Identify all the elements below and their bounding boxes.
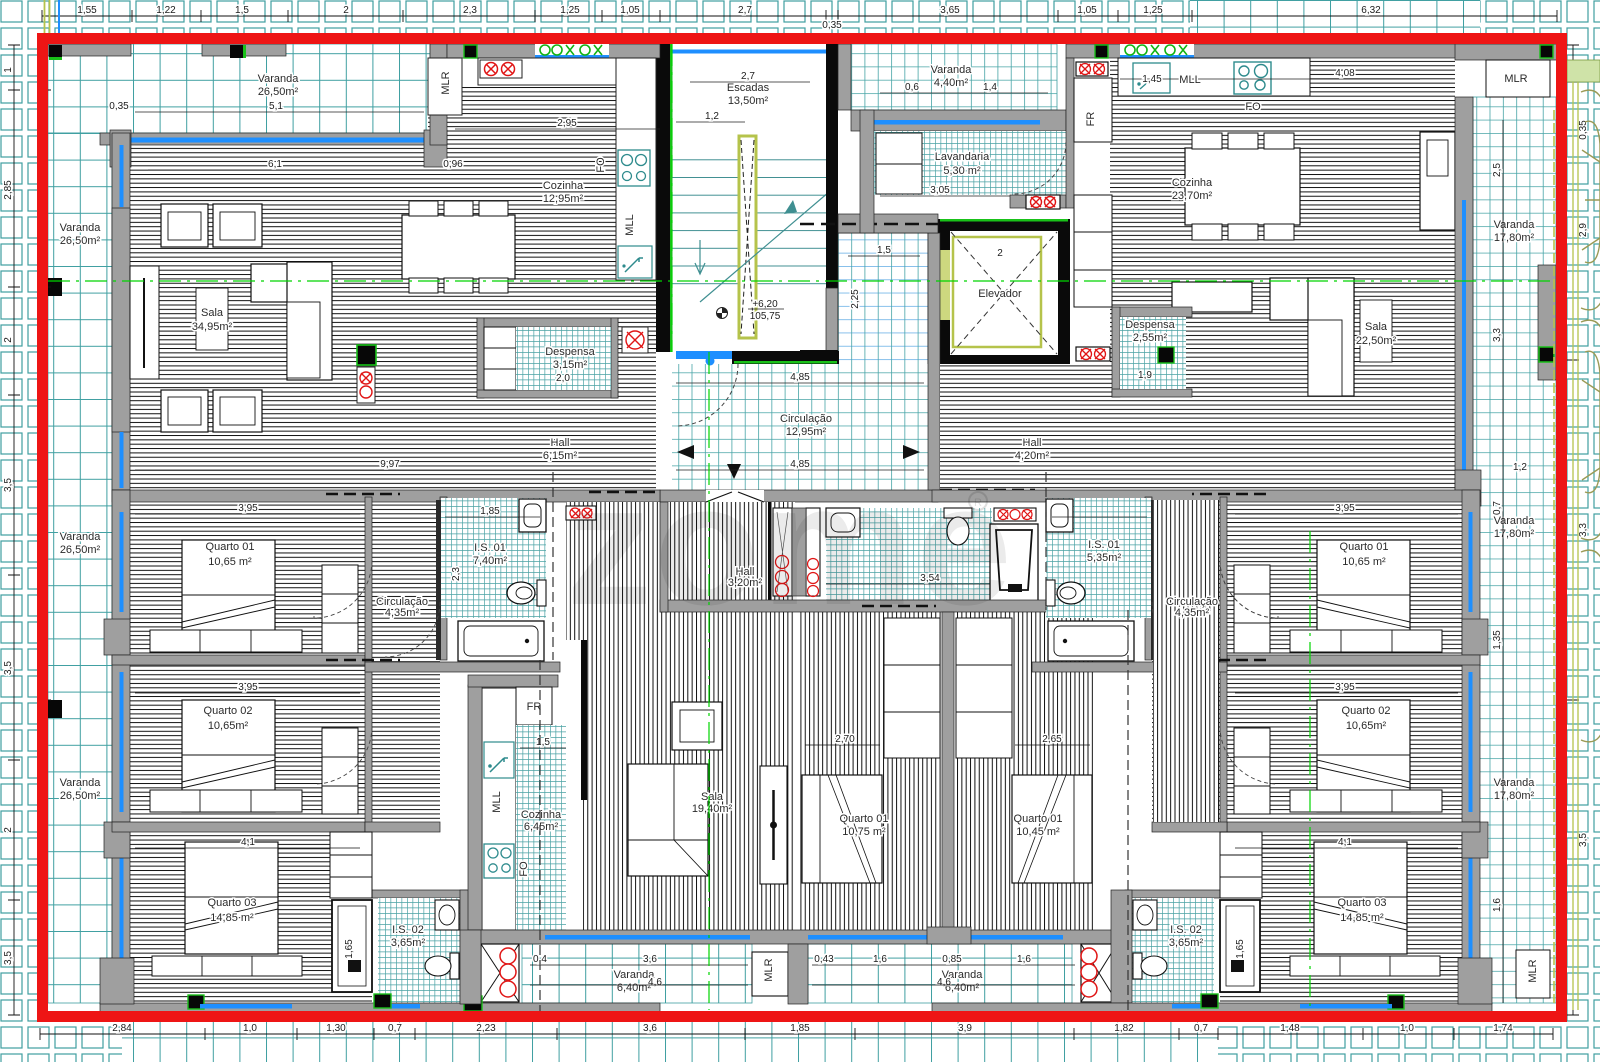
svg-text:26,50m²: 26,50m² (60, 790, 101, 802)
svg-text:FR: FR (1085, 112, 1097, 127)
svg-text:5,30 m²: 5,30 m² (943, 165, 981, 177)
svg-text:2,7: 2,7 (741, 71, 755, 82)
svg-text:23,70m²: 23,70m² (1172, 190, 1213, 202)
svg-text:Hall: Hall (551, 437, 570, 449)
svg-text:R: R (974, 497, 982, 509)
svg-text:3,3: 3,3 (1492, 328, 1503, 342)
svg-text:Quarto 01: Quarto 01 (1014, 813, 1063, 825)
svg-text:Lavandaria: Lavandaria (935, 151, 990, 163)
svg-text:Cozinha: Cozinha (1172, 177, 1213, 189)
svg-text:1,45: 1,45 (1142, 74, 1162, 85)
svg-text:0,35: 0,35 (1578, 120, 1589, 140)
svg-text:26,50m²: 26,50m² (258, 86, 299, 98)
svg-text:4,85: 4,85 (790, 372, 810, 383)
svg-text:13,50m²: 13,50m² (728, 95, 769, 107)
svg-text:4,1: 4,1 (1338, 837, 1352, 848)
svg-text:1,85: 1,85 (480, 506, 500, 517)
svg-text:1,2: 1,2 (705, 111, 719, 122)
svg-text:I.S. 02: I.S. 02 (392, 924, 424, 936)
svg-text:2: 2 (3, 827, 14, 833)
svg-text:Escadas: Escadas (727, 82, 770, 94)
svg-text:Varanda: Varanda (60, 222, 102, 234)
svg-text:7,40m²: 7,40m² (473, 555, 508, 567)
svg-text:Varanda: Varanda (1494, 515, 1536, 527)
svg-text:Varanda: Varanda (258, 73, 300, 85)
svg-text:0,43: 0,43 (814, 954, 834, 965)
svg-text:26,50m²: 26,50m² (60, 544, 101, 556)
svg-text:Cozinha: Cozinha (521, 809, 562, 821)
svg-text:22,50m²: 22,50m² (1356, 335, 1397, 347)
svg-text:0,7: 0,7 (388, 1023, 402, 1034)
svg-text:Circulação: Circulação (780, 413, 832, 425)
svg-text:1,55: 1,55 (77, 5, 97, 16)
svg-text:4,08: 4,08 (1335, 68, 1355, 79)
svg-text:1,25: 1,25 (560, 5, 580, 16)
svg-text:1,30: 1,30 (326, 1023, 346, 1034)
svg-text:Sala: Sala (701, 791, 724, 803)
svg-text:1,65: 1,65 (1235, 939, 1246, 959)
svg-text:Varanda: Varanda (60, 531, 102, 543)
svg-text:FR: FR (527, 701, 542, 713)
svg-text:1,22: 1,22 (156, 5, 176, 16)
svg-text:1,48: 1,48 (1280, 1023, 1300, 1034)
svg-text:4,20m²: 4,20m² (1015, 450, 1050, 462)
svg-text:4,1: 4,1 (241, 837, 255, 848)
svg-text:3,95: 3,95 (1335, 682, 1355, 693)
svg-text:MLL: MLL (624, 214, 636, 235)
svg-text:10,75 m²: 10,75 m² (842, 826, 886, 838)
svg-text:2,0: 2,0 (556, 373, 570, 384)
svg-text:2: 2 (997, 248, 1003, 259)
svg-text:Despensa: Despensa (1125, 319, 1175, 331)
svg-text:3,65m²: 3,65m² (1169, 937, 1204, 949)
svg-text:Cozinha: Cozinha (543, 180, 584, 192)
svg-text:17,80m²: 17,80m² (1494, 528, 1535, 540)
svg-text:Quarto 01: Quarto 01 (840, 813, 889, 825)
svg-text:1,82: 1,82 (1114, 1023, 1134, 1034)
svg-text:2,7: 2,7 (738, 5, 752, 16)
svg-text:FO: FO (1245, 101, 1261, 113)
svg-text:I.S. 02: I.S. 02 (1170, 924, 1202, 936)
svg-text:3,95: 3,95 (1335, 503, 1355, 514)
svg-text:Sala: Sala (201, 307, 224, 319)
svg-text:1,4: 1,4 (983, 82, 997, 93)
svg-text:3,5: 3,5 (3, 951, 14, 965)
svg-text:2,95: 2,95 (557, 118, 577, 129)
svg-text:3,05: 3,05 (930, 185, 950, 196)
svg-text:2,65: 2,65 (1042, 734, 1062, 745)
svg-text:5,1: 5,1 (269, 101, 283, 112)
svg-text:3,5: 3,5 (3, 661, 14, 675)
svg-text:FO: FO (595, 157, 607, 173)
svg-text:Elevador: Elevador (978, 288, 1022, 300)
svg-text:1,5: 1,5 (536, 737, 550, 748)
svg-text:2,85: 2,85 (3, 180, 14, 200)
svg-text:MLL: MLL (491, 791, 503, 812)
svg-text:10,45 m²: 10,45 m² (1016, 826, 1060, 838)
svg-text:3,95: 3,95 (238, 503, 258, 514)
svg-text:2,55m²: 2,55m² (1133, 332, 1168, 344)
svg-text:12,95m²: 12,95m² (543, 193, 584, 205)
svg-text:Quarto 01: Quarto 01 (1340, 541, 1389, 553)
svg-text:Varanda: Varanda (1494, 777, 1536, 789)
svg-text:17,80m²: 17,80m² (1494, 790, 1535, 802)
svg-text:4,35m²: 4,35m² (385, 607, 420, 619)
svg-text:2,84: 2,84 (112, 1023, 132, 1034)
svg-text:Quarto 02: Quarto 02 (204, 705, 253, 717)
svg-text:2,3: 2,3 (463, 5, 477, 16)
svg-text:1,0: 1,0 (1400, 1023, 1414, 1034)
svg-text:Quarto 03: Quarto 03 (1338, 897, 1387, 909)
svg-text:4,6: 4,6 (937, 977, 951, 988)
svg-text:Sala: Sala (1365, 321, 1388, 333)
svg-text:1,5: 1,5 (235, 5, 249, 16)
svg-text:4,35m²: 4,35m² (1175, 607, 1210, 619)
svg-text:34,95m²: 34,95m² (192, 321, 233, 333)
svg-text:Quarto 02: Quarto 02 (1342, 705, 1391, 717)
svg-text:0,7: 0,7 (1194, 1023, 1208, 1034)
svg-text:0,85: 0,85 (942, 954, 962, 965)
svg-text:10,65m²: 10,65m² (1346, 720, 1387, 732)
svg-text:3,65m²: 3,65m² (391, 937, 426, 949)
svg-text:3,5: 3,5 (3, 478, 14, 492)
svg-text:1,9: 1,9 (1138, 370, 1152, 381)
svg-text:Varanda: Varanda (1494, 219, 1536, 231)
svg-text:17,80m²: 17,80m² (1494, 232, 1535, 244)
svg-text:1,74: 1,74 (1493, 1023, 1513, 1034)
svg-text:1,25: 1,25 (1143, 5, 1163, 16)
svg-text:Quarto 01: Quarto 01 (206, 541, 255, 553)
svg-text:4,6: 4,6 (648, 977, 662, 988)
svg-text:4,40m²: 4,40m² (934, 77, 969, 89)
svg-text:3,5: 3,5 (1578, 833, 1589, 847)
svg-text:I.S. 01: I.S. 01 (474, 542, 506, 554)
svg-text:1,6: 1,6 (873, 954, 887, 965)
svg-text:0,35: 0,35 (822, 20, 842, 31)
svg-text:2,3: 2,3 (451, 567, 462, 581)
svg-text:2,25: 2,25 (850, 289, 861, 309)
svg-text:6,32: 6,32 (1361, 5, 1381, 16)
svg-text:3,3: 3,3 (1578, 523, 1589, 537)
svg-text:3,15m²: 3,15m² (553, 359, 588, 371)
svg-text:MLR: MLR (440, 71, 452, 94)
svg-text:1: 1 (3, 67, 14, 73)
svg-text:3,9: 3,9 (958, 1023, 972, 1034)
svg-text:zome: zome (566, 449, 1014, 641)
svg-text:MLR: MLR (1527, 959, 1539, 982)
svg-text:1,05: 1,05 (1077, 5, 1097, 16)
svg-text:10,65m²: 10,65m² (208, 720, 249, 732)
svg-text:I.S. 01: I.S. 01 (1088, 539, 1120, 551)
svg-text:2,5: 2,5 (1492, 163, 1503, 177)
svg-text:Quarto 03: Quarto 03 (208, 897, 257, 909)
svg-text:3,6: 3,6 (643, 1023, 657, 1034)
svg-text:26,50m²: 26,50m² (60, 235, 101, 247)
svg-text:0,96: 0,96 (443, 159, 463, 170)
svg-text:1,0: 1,0 (243, 1023, 257, 1034)
svg-text:0,7: 0,7 (1492, 501, 1503, 515)
svg-text:1,05: 1,05 (620, 5, 640, 16)
svg-text:0,6: 0,6 (905, 82, 919, 93)
svg-text:MLL: MLL (1179, 74, 1200, 86)
svg-text:1,65: 1,65 (344, 939, 355, 959)
svg-text:6,1: 6,1 (268, 159, 282, 170)
svg-text:19,40m²: 19,40m² (692, 803, 733, 815)
svg-text:5,35m²: 5,35m² (1087, 552, 1122, 564)
svg-text:0,35: 0,35 (109, 101, 129, 112)
svg-text:Hall: Hall (1023, 437, 1042, 449)
svg-text:1,6: 1,6 (1492, 898, 1503, 912)
svg-text:+6,20: +6,20 (752, 299, 778, 310)
svg-text:1,2: 1,2 (1513, 462, 1527, 473)
svg-text:Despensa: Despensa (545, 346, 595, 358)
svg-text:6,40m²: 6,40m² (617, 982, 652, 994)
svg-text:1,35: 1,35 (1492, 630, 1503, 650)
svg-text:105,75: 105,75 (750, 311, 781, 322)
svg-text:9,97: 9,97 (380, 459, 400, 470)
svg-text:6,45m²: 6,45m² (524, 821, 559, 833)
svg-text:Varanda: Varanda (60, 777, 102, 789)
svg-text:3,95: 3,95 (238, 682, 258, 693)
svg-text:MLR: MLR (1504, 73, 1527, 85)
svg-text:2,70: 2,70 (835, 734, 855, 745)
svg-text:3,6: 3,6 (643, 954, 657, 965)
svg-text:6,15m²: 6,15m² (543, 450, 578, 462)
svg-text:2: 2 (3, 337, 14, 343)
svg-text:1,6: 1,6 (1017, 954, 1031, 965)
svg-text:3,20m²: 3,20m² (728, 577, 763, 589)
svg-text:3,65: 3,65 (940, 5, 960, 16)
svg-text:12,95m²: 12,95m² (786, 426, 827, 438)
svg-text:10,65 m²: 10,65 m² (1342, 556, 1386, 568)
svg-text:1,5: 1,5 (877, 245, 891, 256)
svg-text:1,85: 1,85 (790, 1023, 810, 1034)
svg-text:2,9: 2,9 (1578, 223, 1589, 237)
svg-text:2,23: 2,23 (476, 1023, 496, 1034)
svg-text:3,54: 3,54 (920, 573, 940, 584)
svg-text:14,85 m²: 14,85 m² (210, 912, 254, 924)
svg-text:Varanda: Varanda (931, 64, 973, 76)
svg-text:10,65 m²: 10,65 m² (208, 556, 252, 568)
svg-text:14,85 m²: 14,85 m² (1340, 912, 1384, 924)
svg-text:FO: FO (518, 861, 530, 877)
svg-text:MLR: MLR (763, 958, 775, 981)
svg-text:2: 2 (343, 5, 349, 16)
